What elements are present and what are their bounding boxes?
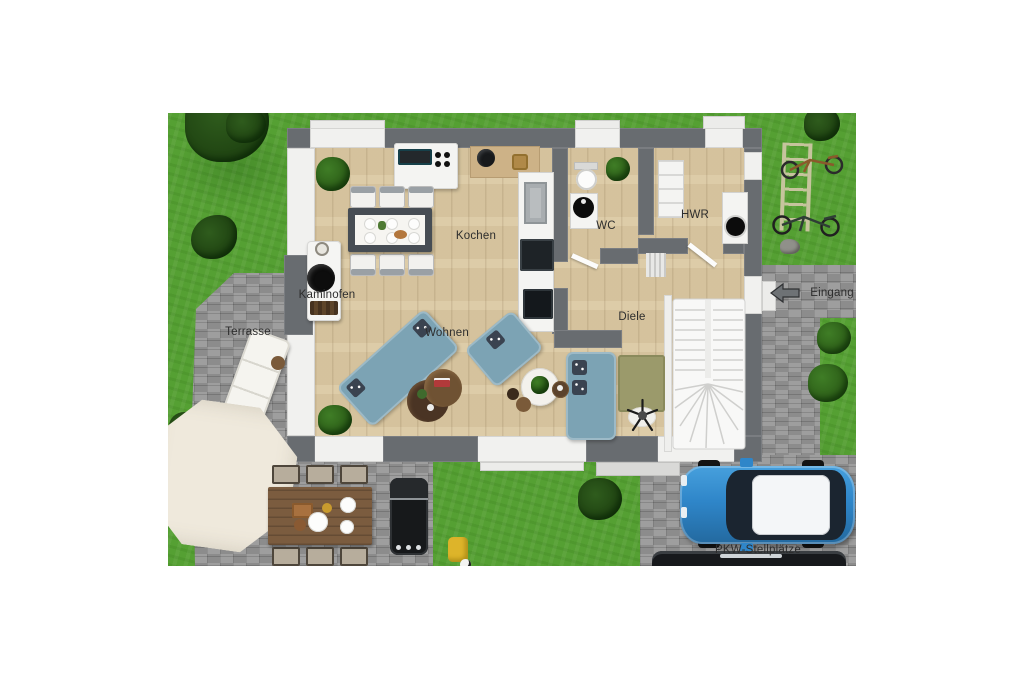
room-label-hwr: HWR [681,209,709,221]
dining-chair [350,186,376,208]
grill-knob [396,545,401,550]
table-plant-small [417,389,427,399]
wall-below-hwr-a [638,238,688,254]
soccer-ball [460,559,471,566]
cooking-pot [477,149,495,167]
room-label-kochen: Kochen [456,230,496,242]
dining-chair [379,254,405,276]
car-headlight-1 [681,475,687,486]
table-bread [394,230,407,239]
plate [408,232,420,244]
room-label-wohnen: Wohnen [425,327,469,339]
patio-bowl-wood [294,519,306,531]
patio-chair [340,465,368,484]
grill-knob [406,545,411,550]
wall-wohnen-diele-h [554,330,622,348]
coffee-cup [427,404,434,411]
magazine [434,378,450,387]
bread-basket-counter [512,154,528,170]
grill-knob [416,545,421,550]
stair-half-wall [664,295,672,452]
patio-bowl-gold [322,503,332,513]
door-top-hwr [705,128,743,148]
rock [780,239,800,254]
dishwasher-appliance [523,289,553,319]
patio-plate-large [308,512,328,532]
firewood-logs [310,301,338,315]
room-label-diele: Diele [618,311,645,323]
sofa-small [566,352,616,440]
floor-plan-image: Kochen WC HWR Kaminofen Wohnen Diele Ter… [168,113,856,566]
dining-chair [408,186,434,208]
lounger-side-table [271,356,285,370]
coffee-table-light [424,369,462,407]
wall-wc-hwr [638,148,654,235]
plate [408,218,420,230]
coffee-machine [398,149,432,165]
stool-wood [516,397,531,412]
patio-chair [340,547,368,566]
plate [386,218,398,230]
entrance-arrow-icon [769,282,801,304]
area-label-eingang: Eingang [810,287,854,299]
wall-below-wc [600,248,638,264]
plate [364,218,376,230]
office-chair [624,397,661,434]
dining-chair [350,254,376,276]
oven-appliance [520,239,554,271]
patio-plate [340,497,356,513]
car-mirror-top [740,458,753,467]
bicycle-1 [774,150,856,182]
wc-faucet [581,199,586,204]
front-door-opening [744,276,762,314]
window-top-2 [575,128,620,148]
radiator [646,253,666,277]
dining-chair [379,186,405,208]
cooktop-burner-2 [444,152,450,158]
cup-on-side-table [557,385,563,391]
patio-chair [272,465,300,484]
patio-slab [596,462,680,476]
bicycle-2 [766,207,856,241]
stove-top [307,264,335,292]
car-headlight-2 [681,507,687,518]
patio-plate [340,520,354,534]
area-label-terrasse: Terrasse [225,326,271,338]
table-greens [378,221,386,230]
washing-machine-drum [726,217,745,236]
patio-chair [272,547,300,566]
car-roof [752,475,830,535]
window-right-hwr [744,152,762,180]
patio-chair [306,547,334,566]
window-top-1 [310,128,385,148]
window-sill-bottom-1 [480,462,584,471]
wall-bottom-seg-1 [383,436,478,462]
area-label-pkw: PKW-Stellplätze [715,544,801,556]
plate [364,232,376,244]
kitchen-sink [524,182,547,224]
cooktop-burner-4 [444,161,450,167]
bbq-grill-hood [390,478,428,500]
toilet-bowl [576,169,597,190]
staircase [672,298,746,450]
wall-wohnen-diele-v [552,288,568,334]
room-label-wc: WC [596,220,616,232]
cooktop-burner-3 [435,161,441,167]
cooktop-burner-1 [435,152,441,158]
stove-gauge [315,242,329,256]
stool-dark [507,388,519,400]
room-label-kaminofen: Kaminofen [299,289,356,301]
patio-chair [306,465,334,484]
wall-kitchen-wc [552,148,568,262]
dining-chair [408,254,434,276]
